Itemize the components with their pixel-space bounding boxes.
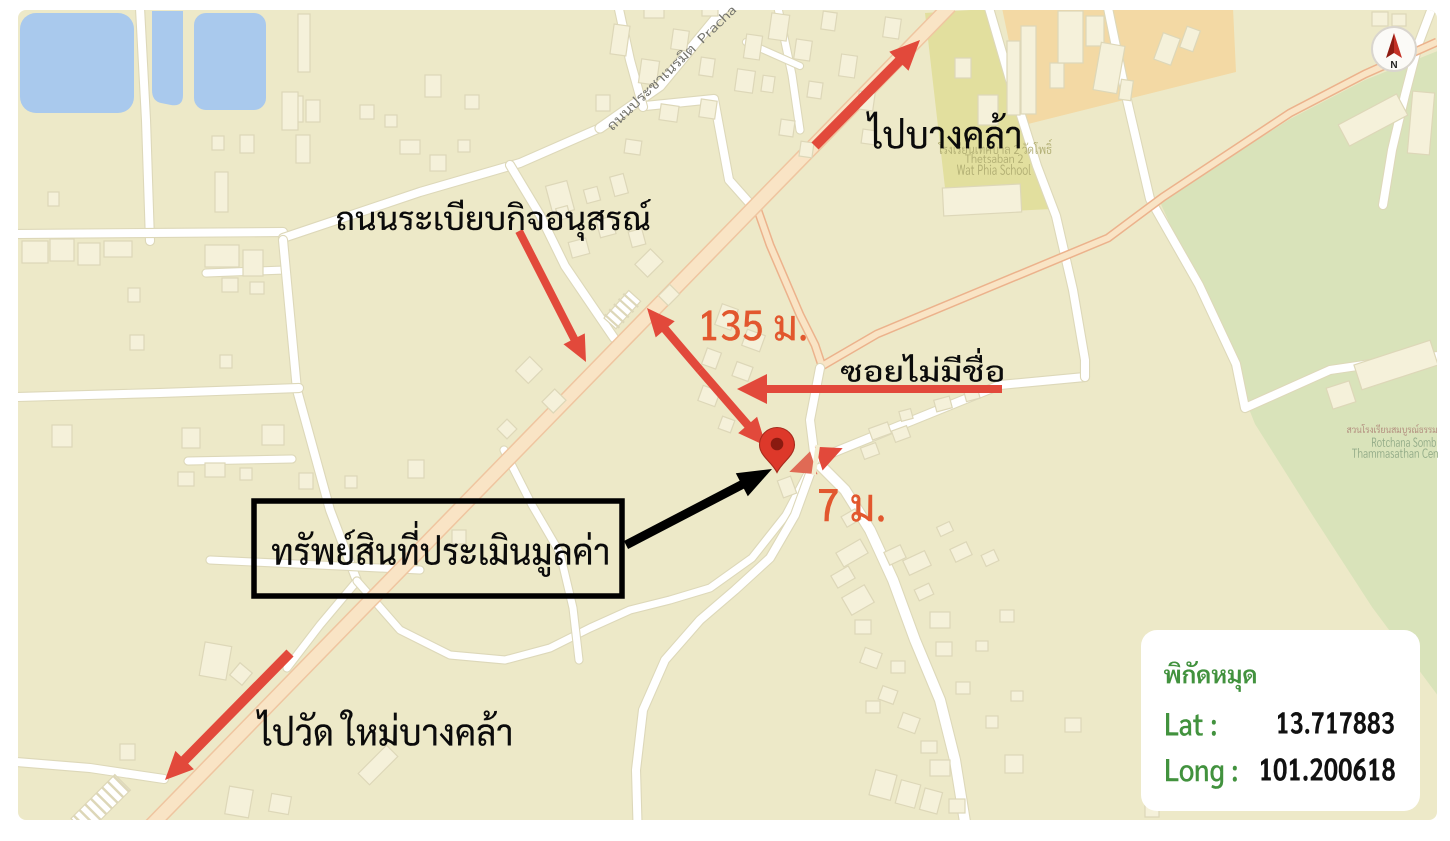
svg-text:N: N bbox=[1390, 60, 1397, 71]
